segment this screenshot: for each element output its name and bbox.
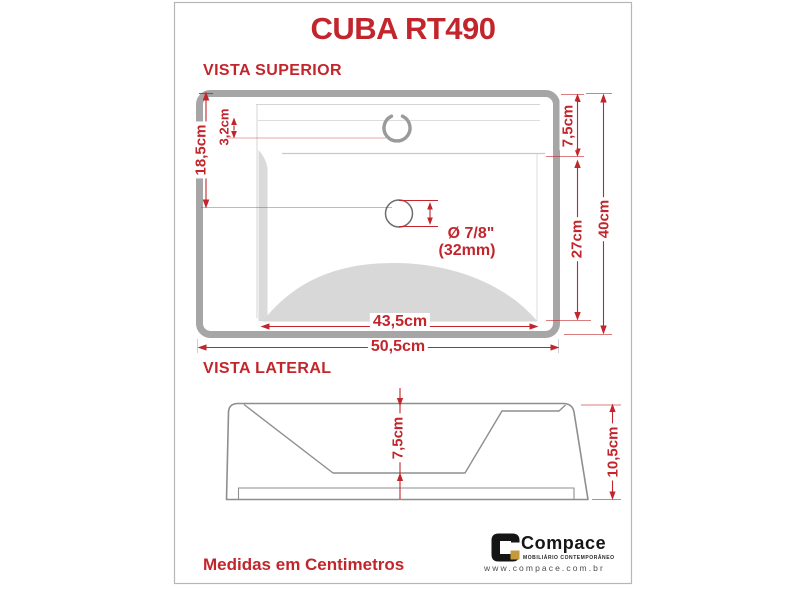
brand-tagline: MOBILIÁRIO CONTEMPORÂNEO [523,556,615,561]
side-view-heading: VISTA LATERAL [203,361,331,377]
top-view-heading: VISTA SUPERIOR [203,63,342,79]
drain-diameter-mm-label: (32mm) [439,243,496,259]
dim-label-total-height: 10,5cm [605,424,622,481]
dim-label-inner-width: 43,5cm [370,313,430,331]
dim-label-basin-length: 27cm [569,217,586,261]
dim-label-rim-to-deck: 7,5cm [560,102,577,151]
page-title: CUBA RT490 [310,13,495,44]
diagram-canvas [0,0,810,590]
product-diagram: CUBA RT490 VISTA SUPERIOR 18,5cm 3,2cm 7… [0,0,810,590]
brand-website: www.compace.com.br [484,564,605,573]
dim-label-total-depth: 40cm [596,197,613,241]
compace-logo-icon [492,534,521,562]
top-view-drawing [200,94,557,335]
dim-label-rim-to-drain: 18,5cm [193,122,210,179]
dim-label-faucet-offset: 3,2cm [218,109,231,146]
dim-label-bowl-depth: 7,5cm [390,414,407,463]
side-view-drawing [227,404,589,500]
drain-hole [386,200,413,227]
units-note: Medidas em Centimetros [203,556,404,573]
drain-diameter-label: Ø 7/8" [448,226,495,242]
dim-label-outer-width: 50,5cm [368,338,428,356]
logo-gold-square [511,551,520,560]
basin-left-shading [259,150,268,321]
brand-name: Compace [521,534,606,552]
